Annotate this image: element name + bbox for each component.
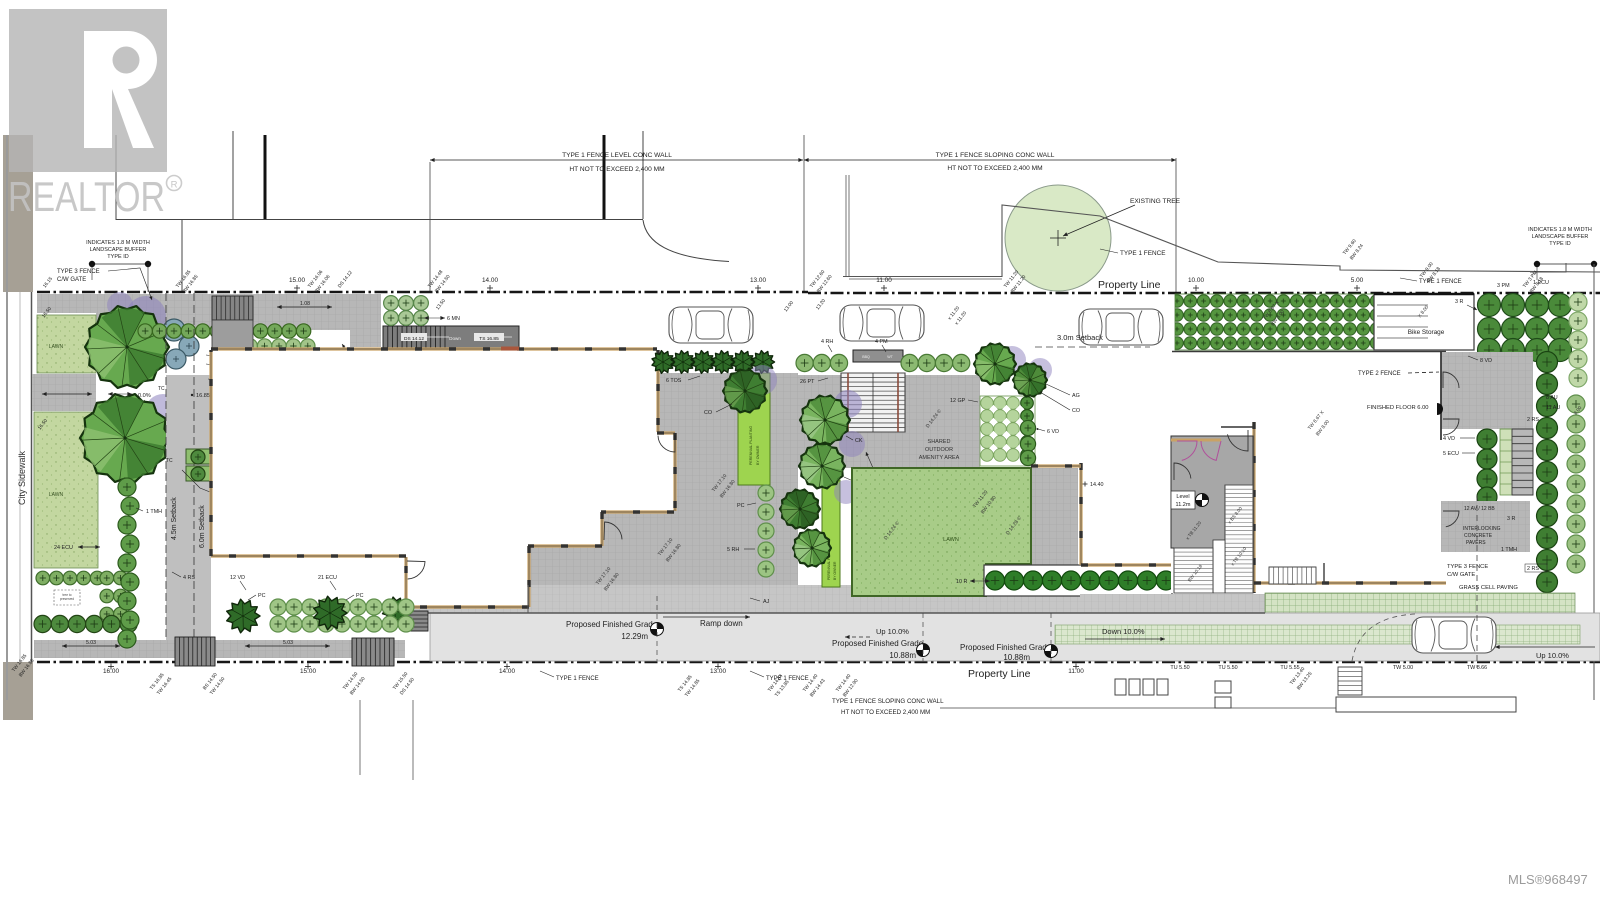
- svg-text:REALTOR: REALTOR: [8, 173, 165, 220]
- svg-text:HT NOT TO EXCEED 2,400 MM: HT NOT TO EXCEED 2,400 MM: [841, 709, 930, 716]
- svg-text:6 MN: 6 MN: [447, 316, 460, 322]
- svg-text:4.5m Setback: 4.5m Setback: [171, 497, 178, 540]
- svg-text:PERENNIAL PLANTING: PERENNIAL PLANTING: [749, 426, 753, 465]
- svg-text:LAWN: LAWN: [49, 492, 64, 498]
- svg-text:Proposed Finished Grade: Proposed Finished Grade: [960, 643, 1052, 652]
- svg-text:Level: Level: [1176, 494, 1189, 500]
- svg-text:TC: TC: [158, 386, 165, 392]
- svg-text:C/W GATE: C/W GATE: [1447, 572, 1475, 578]
- svg-text:Property Line: Property Line: [1098, 279, 1161, 291]
- svg-text:TYPE 1 FENCE LEVEL CONC WALL: TYPE 1 FENCE LEVEL CONC WALL: [562, 152, 672, 159]
- svg-text:3.0m Setback: 3.0m Setback: [1057, 333, 1103, 342]
- svg-text:TYPE 3 FENCE: TYPE 3 FENCE: [1447, 564, 1488, 570]
- svg-text:4 PM: 4 PM: [875, 339, 888, 345]
- svg-text:AG: AG: [1072, 393, 1080, 399]
- svg-text:INDICATES 1.8 M WIDTH: INDICATES 1.8 M WIDTH: [86, 240, 150, 246]
- svg-text:10.88m: 10.88m: [1003, 653, 1030, 662]
- svg-text:13.00: 13.00: [750, 277, 766, 284]
- svg-text:11.2m: 11.2m: [1176, 502, 1191, 508]
- svg-text:CO: CO: [1072, 408, 1080, 414]
- svg-text:24 ECU: 24 ECU: [54, 545, 73, 551]
- svg-text:10 R: 10 R: [956, 579, 967, 585]
- svg-text:TC: TC: [166, 458, 173, 464]
- svg-text:Proposed Finished Grade: Proposed Finished Grade: [832, 639, 924, 648]
- svg-text:BY OWNER: BY OWNER: [756, 445, 760, 465]
- svg-text:CONCRETE: CONCRETE: [1464, 533, 1493, 539]
- svg-text:Up 10.0%: Up 10.0%: [1536, 651, 1569, 660]
- svg-text:C/W GATE: C/W GATE: [57, 277, 86, 283]
- svg-text:TYPE 1 FENCE: TYPE 1 FENCE: [1419, 279, 1462, 285]
- svg-text:10.00: 10.00: [1188, 277, 1204, 284]
- svg-text:6 VD: 6 VD: [1047, 429, 1059, 435]
- svg-text:INDICATES 1.8 M WIDTH: INDICATES 1.8 M WIDTH: [1528, 227, 1592, 233]
- svg-text:LANDSCAPE BUFFER: LANDSCAPE BUFFER: [90, 247, 147, 253]
- svg-text:TS 16.85: TS 16.85: [479, 336, 499, 342]
- svg-text:FINISHED FLOOR 6.00: FINISHED FLOOR 6.00: [1367, 405, 1429, 411]
- svg-text:Down 10.0%: Down 10.0%: [1102, 627, 1145, 636]
- svg-text:6 TOS: 6 TOS: [666, 378, 682, 384]
- svg-text:AJ: AJ: [763, 599, 770, 605]
- svg-text:MLS®968497: MLS®968497: [1508, 872, 1588, 887]
- svg-text:5.00: 5.00: [1351, 277, 1364, 284]
- svg-text:BBQ: BBQ: [862, 355, 870, 359]
- svg-text:Ramp down: Ramp down: [700, 619, 743, 628]
- svg-text:TU 5.50: TU 5.50: [1218, 665, 1237, 671]
- svg-text:5.03: 5.03: [86, 640, 96, 646]
- svg-text:OUTDOOR: OUTDOOR: [925, 447, 953, 453]
- svg-text:3 PM: 3 PM: [1497, 283, 1510, 289]
- svg-text:1 TMH: 1 TMH: [146, 509, 162, 515]
- svg-text:TYPE 2 FENCE: TYPE 2 FENCE: [1358, 371, 1401, 377]
- svg-text:City Sidewalk: City Sidewalk: [17, 450, 27, 505]
- svg-text:LANDSCAPE BUFFER: LANDSCAPE BUFFER: [1532, 234, 1589, 240]
- svg-text:21 ECU: 21 ECU: [318, 575, 337, 581]
- svg-text:TW 5.00: TW 5.00: [1393, 665, 1413, 671]
- svg-text:8 VD: 8 VD: [1480, 358, 1492, 364]
- svg-text:TYPE ID: TYPE ID: [1549, 241, 1570, 247]
- svg-text:12 GP: 12 GP: [950, 398, 966, 404]
- svg-text:PAVERS: PAVERS: [1466, 540, 1486, 546]
- svg-text:0.0%: 0.0%: [138, 393, 151, 399]
- svg-text:TYPE 1 FENCE SLOPING CONC WALL: TYPE 1 FENCE SLOPING CONC WALL: [936, 152, 1055, 159]
- svg-text:10.88m: 10.88m: [889, 651, 916, 660]
- svg-text:TU 5.50: TU 5.50: [1170, 665, 1189, 671]
- svg-text:PC: PC: [258, 593, 266, 599]
- svg-text:1.08: 1.08: [300, 301, 310, 307]
- svg-text:Property Line: Property Line: [968, 668, 1031, 680]
- svg-text:GRASS CELL PAVING: GRASS CELL PAVING: [1459, 585, 1518, 591]
- svg-text:1 TMH: 1 TMH: [1501, 547, 1517, 553]
- svg-text:4 RS: 4 RS: [183, 575, 195, 581]
- svg-text:TYPE 3 FENCE: TYPE 3 FENCE: [57, 269, 100, 275]
- svg-text:Up 10.0%: Up 10.0%: [876, 627, 909, 636]
- svg-text:TU 5.55: TU 5.55: [1280, 665, 1299, 671]
- svg-text:PC: PC: [356, 593, 364, 599]
- svg-text:SHARED: SHARED: [928, 439, 951, 445]
- svg-text:12 AV / 12 BB: 12 AV / 12 BB: [1464, 506, 1495, 512]
- svg-text:TYPE 1 FENCE SLOPING CONC WALL: TYPE 1 FENCE SLOPING CONC WALL: [832, 698, 944, 705]
- svg-text:INTERLOCKING: INTERLOCKING: [1463, 526, 1501, 532]
- svg-text:BY OWNER: BY OWNER: [833, 561, 837, 580]
- svg-text:Down: Down: [449, 336, 461, 341]
- svg-text:HT NOT TO EXCEED 2,400 MM: HT NOT TO EXCEED 2,400 MM: [569, 166, 664, 173]
- svg-text:11 AU: 11 AU: [1546, 405, 1560, 411]
- svg-text:26 PT: 26 PT: [800, 379, 815, 385]
- svg-text:LAWN: LAWN: [49, 344, 64, 350]
- svg-text:WT: WT: [887, 355, 893, 359]
- svg-text:Bike Storage: Bike Storage: [1408, 329, 1445, 336]
- svg-text:DS 14.12: DS 14.12: [404, 336, 424, 342]
- svg-text:EXISTING TREE: EXISTING TREE: [1130, 198, 1181, 205]
- svg-text:AMENITY AREA: AMENITY AREA: [919, 455, 960, 461]
- svg-text:14.00: 14.00: [482, 277, 498, 284]
- svg-text:12 VD: 12 VD: [230, 575, 245, 581]
- svg-text:HT NOT TO EXCEED 2,400 MM: HT NOT TO EXCEED 2,400 MM: [947, 165, 1042, 172]
- svg-text:6.0m Setback: 6.0m Setback: [199, 505, 206, 548]
- svg-text:CK: CK: [855, 438, 863, 444]
- svg-text:12.29m: 12.29m: [621, 632, 648, 641]
- svg-text:5.03: 5.03: [283, 640, 293, 646]
- svg-text:4 VD: 4 VD: [1443, 436, 1455, 442]
- svg-text:TYPE 1 FENCE: TYPE 1 FENCE: [556, 676, 599, 682]
- svg-text:TYPE ID: TYPE ID: [107, 254, 128, 260]
- svg-text:2 RS: 2 RS: [1527, 417, 1539, 423]
- svg-text:preserved: preserved: [60, 597, 74, 601]
- svg-text:3 R: 3 R: [1455, 299, 1463, 305]
- svg-text:11.00: 11.00: [876, 277, 892, 284]
- svg-text:TYPE 1 FENCE: TYPE 1 FENCE: [1120, 250, 1165, 257]
- svg-text:8 AU: 8 AU: [1546, 395, 1558, 401]
- svg-text:LAWN: LAWN: [943, 537, 959, 543]
- svg-text:CO: CO: [704, 410, 712, 416]
- svg-text:5 ECU: 5 ECU: [1443, 451, 1459, 457]
- svg-text:14.40: 14.40: [1090, 482, 1104, 488]
- svg-text:3 R: 3 R: [1507, 516, 1515, 522]
- svg-text:15.00: 15.00: [289, 277, 305, 284]
- svg-text:PC: PC: [737, 503, 745, 509]
- svg-text:2 RS: 2 RS: [1527, 566, 1539, 572]
- svg-text:5 RH: 5 RH: [727, 547, 739, 553]
- svg-text:Proposed Finished Grade: Proposed Finished Grade: [566, 620, 658, 629]
- svg-text:4 RH: 4 RH: [821, 339, 833, 345]
- svg-text:R: R: [171, 180, 178, 191]
